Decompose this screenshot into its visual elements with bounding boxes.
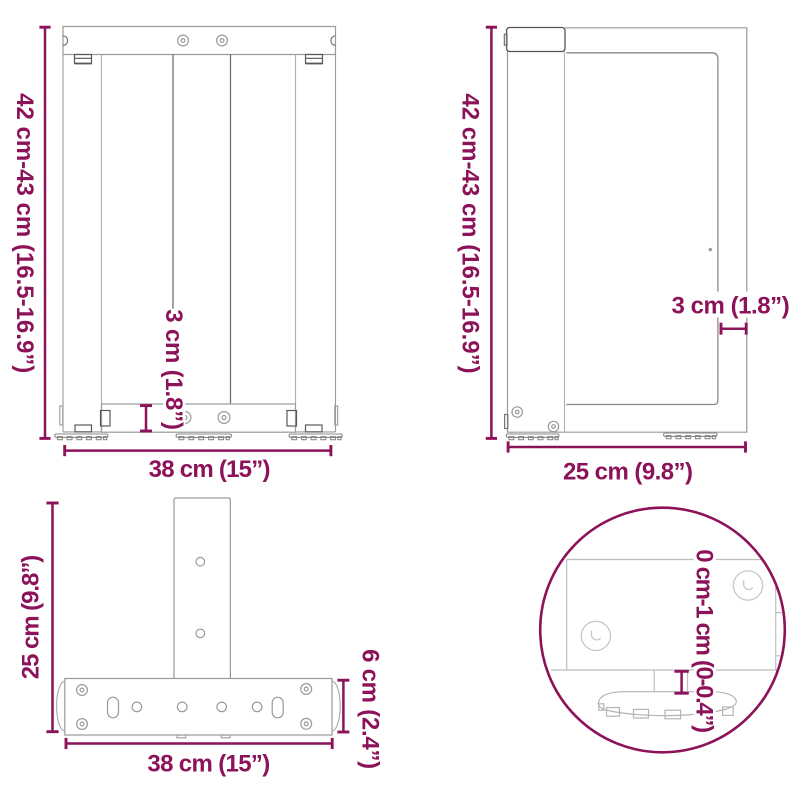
svg-text:0 cm-1 cm (0-0.4”): 0 cm-1 cm (0-0.4”) xyxy=(691,549,718,732)
svg-text:38 cm (15”): 38 cm (15”) xyxy=(147,750,269,777)
svg-text:6 cm (2.4”): 6 cm (2.4”) xyxy=(357,649,384,769)
svg-text:42 cm-43 cm (16.5-16.9”): 42 cm-43 cm (16.5-16.9”) xyxy=(457,93,484,373)
svg-text:3 cm (1.8”): 3 cm (1.8”) xyxy=(672,292,790,319)
svg-text:42 cm-43 cm (16.5-16.9”): 42 cm-43 cm (16.5-16.9”) xyxy=(11,93,38,373)
svg-text:3 cm (1.8”): 3 cm (1.8”) xyxy=(160,309,187,430)
svg-text:25 cm (9.8”): 25 cm (9.8”) xyxy=(563,459,692,486)
svg-text:25 cm (9.8”): 25 cm (9.8”) xyxy=(17,556,44,680)
svg-text:38 cm (15”): 38 cm (15”) xyxy=(149,456,270,483)
